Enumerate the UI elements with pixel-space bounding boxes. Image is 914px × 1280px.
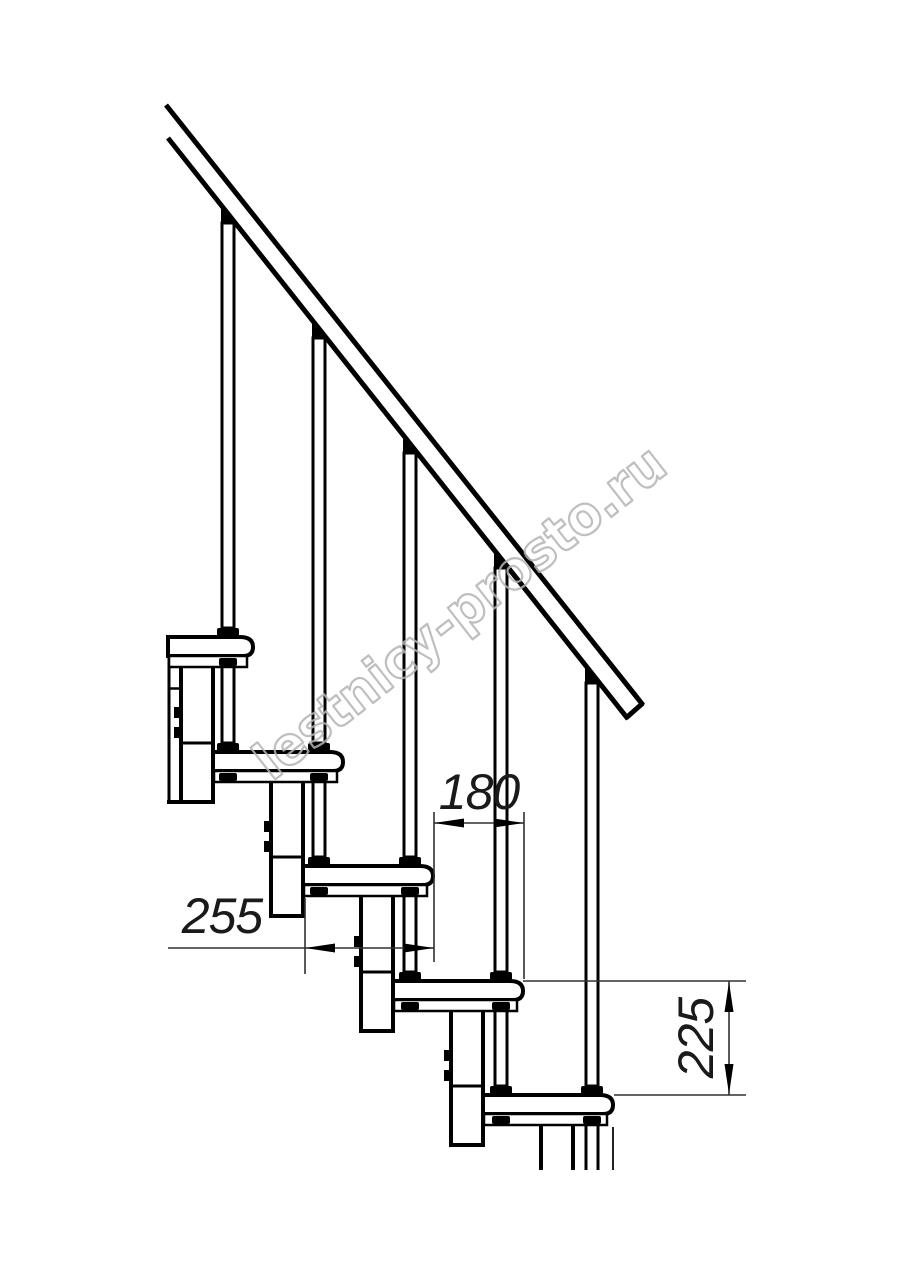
- rod-lower-2: [313, 781, 325, 857]
- tread-board: [303, 866, 433, 885]
- tread-board: [483, 1095, 613, 1114]
- tread-1: [168, 637, 253, 667]
- collar: [308, 857, 330, 866]
- tread-board: [393, 981, 523, 1000]
- drawing-svg: lestnicy-prosto.ru 180 255 225: [0, 0, 914, 1280]
- collar: [490, 1086, 512, 1095]
- bolt: [174, 727, 183, 738]
- arrowhead: [725, 1064, 734, 1094]
- support-column-2: [264, 771, 303, 916]
- nut: [401, 1002, 419, 1010]
- rod: [586, 683, 598, 1086]
- dimension-label-180: 180: [439, 764, 521, 820]
- nut: [583, 1116, 601, 1124]
- nut: [219, 658, 237, 666]
- dimension-label-255: 255: [181, 888, 264, 944]
- tread-board: [168, 637, 253, 656]
- baluster-rod-1: [221, 207, 234, 628]
- column-body: [271, 771, 303, 916]
- baluster-rod-2: [312, 322, 325, 743]
- nut: [401, 887, 419, 895]
- bolt: [354, 956, 363, 967]
- rod-lower-3: [404, 895, 416, 972]
- bolt: [264, 841, 273, 852]
- arrowhead: [305, 944, 335, 953]
- dimension-rise-225: 225: [523, 981, 746, 1095]
- bolt: [444, 1050, 453, 1061]
- column-body: [451, 1000, 483, 1145]
- bolt: [174, 707, 183, 718]
- nut: [492, 1116, 510, 1124]
- arrowhead: [725, 982, 734, 1012]
- column-body: [181, 656, 213, 802]
- bolt: [264, 821, 273, 832]
- bolt: [444, 1070, 453, 1081]
- rod-lower-1: [222, 666, 234, 743]
- nut: [310, 887, 328, 895]
- dimension-label-225: 225: [668, 997, 724, 1080]
- nut: [492, 1002, 510, 1010]
- collar: [399, 972, 421, 981]
- bolt: [354, 936, 363, 947]
- rod: [222, 223, 234, 628]
- column-body: [361, 885, 393, 1031]
- nut: [310, 773, 328, 781]
- support-column-3: [354, 885, 393, 1031]
- collar: [217, 743, 239, 752]
- dimension-run-180: 180: [434, 764, 524, 979]
- support-column-4: [444, 1000, 483, 1145]
- support-column-1: [174, 656, 213, 802]
- rod-lower-4: [495, 1010, 507, 1086]
- staircase-technical-drawing: lestnicy-prosto.ru 180 255 225: [0, 0, 914, 1280]
- baluster-rod-5: [585, 667, 598, 1086]
- arrowhead: [404, 944, 434, 953]
- nut: [219, 773, 237, 781]
